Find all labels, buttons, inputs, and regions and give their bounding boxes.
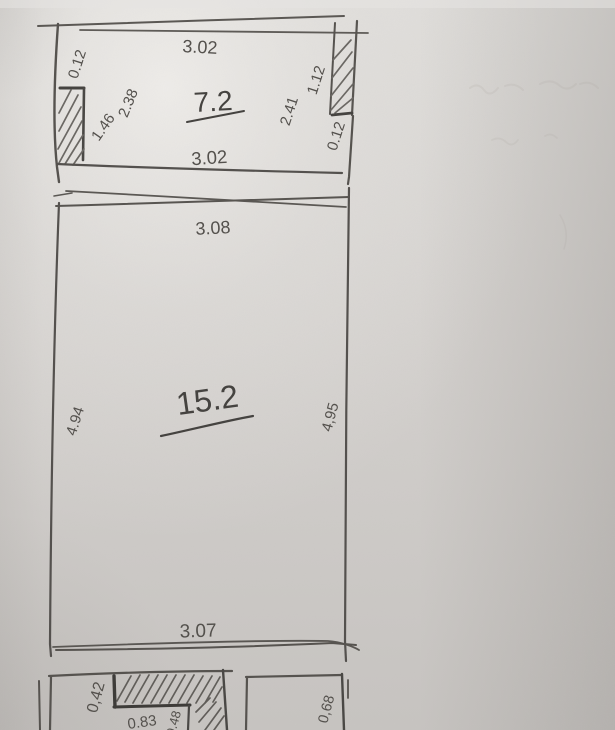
svg-text:3.02: 3.02 bbox=[182, 36, 218, 58]
svg-text:3.07: 3.07 bbox=[179, 620, 217, 642]
svg-text:7.2: 7.2 bbox=[193, 85, 234, 118]
svg-text:0.83: 0.83 bbox=[126, 712, 157, 730]
svg-text:3.08: 3.08 bbox=[195, 217, 231, 239]
svg-text:3.02: 3.02 bbox=[191, 146, 228, 169]
